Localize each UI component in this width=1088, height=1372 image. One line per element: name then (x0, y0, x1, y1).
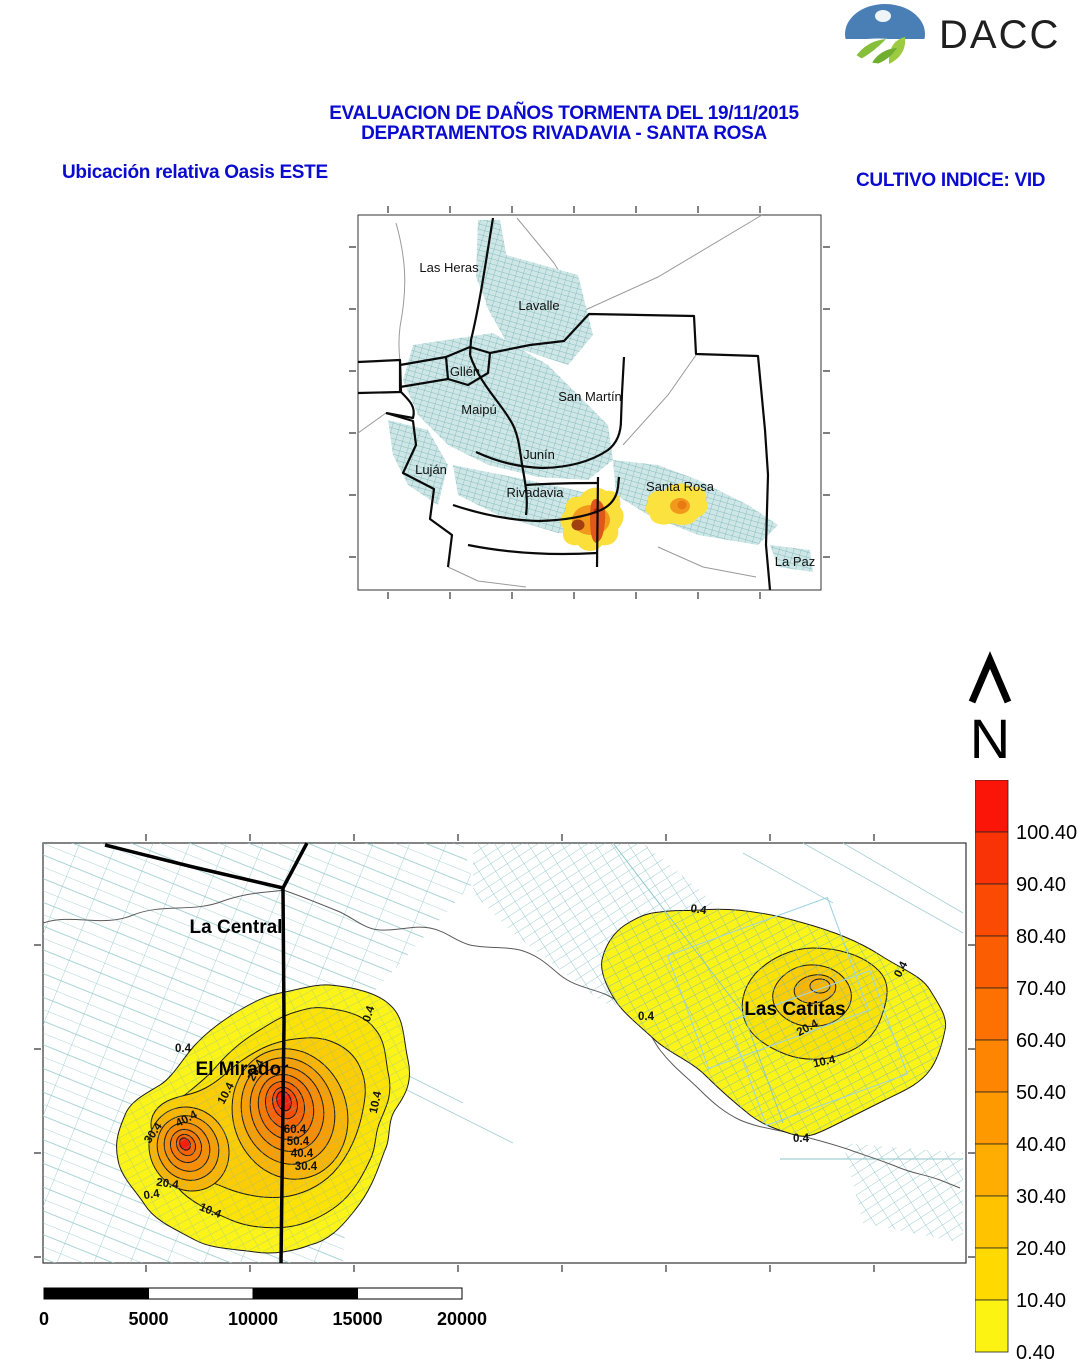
dept-label-rivadavia: Rivadavia (506, 485, 564, 500)
scale-label: 20000 (437, 1309, 487, 1329)
scale-label: 5000 (128, 1309, 168, 1329)
legend-color-scale: 100.40 90.40 80.40 70.40 60.40 50.40 40.… (975, 780, 1087, 1365)
dept-label-san-martin: San Martín (558, 389, 622, 404)
dept-label-maipu: Maipú (461, 402, 496, 417)
contour-label: 50.4 (287, 1136, 310, 1148)
dacc-logo: DACC (843, 3, 1060, 67)
dept-label-la-paz: La Paz (775, 554, 815, 569)
scale-label: 15000 (332, 1309, 382, 1329)
title-line-1: EVALUACION DE DAÑOS TORMENTA DEL 19/11/2… (234, 104, 894, 124)
damage-contour-map: 0.4 0.4 0.4 10.4 10.4 10.4 20.4 20.4 30.… (31, 831, 978, 1275)
legend-value-labels: 100.40 90.40 80.40 70.40 60.40 50.40 40.… (1016, 822, 1077, 1364)
title-line-2: DEPARTAMENTOS RIVADAVIA - SANTA ROSA (234, 124, 894, 144)
contour-label: 60.4 (284, 1124, 307, 1136)
legend-value: 20.40 (1016, 1238, 1066, 1260)
legend-color-blocks (975, 780, 1008, 1352)
legend-value: 40.40 (1016, 1134, 1066, 1156)
legend-value: 30.40 (1016, 1186, 1066, 1208)
place-label-las-catitas: Las Catitas (744, 999, 845, 1020)
north-arrow-label: N (970, 707, 1010, 765)
dept-label-junin: Junín (523, 447, 555, 462)
north-arrow: N (940, 640, 1050, 765)
scale-label: 0 (39, 1309, 49, 1329)
place-label-el-mirador: El Mirador (196, 1059, 290, 1080)
legend-value: 80.40 (1016, 926, 1066, 948)
scale-bar: 0 5000 10000 15000 20000 (36, 1280, 516, 1336)
contour-label: 0.4 (690, 903, 708, 917)
contour-label: 40.4 (291, 1148, 314, 1160)
overview-map: Las Heras Lavalle Gllén Maipú San Martín… (346, 203, 833, 602)
contour-label: 30.4 (295, 1161, 318, 1173)
legend-value: 50.40 (1016, 1082, 1066, 1104)
dept-label-lujan: Luján (415, 462, 447, 477)
dacc-logo-text: DACC (939, 13, 1060, 58)
legend-value: 60.40 (1016, 1030, 1066, 1052)
contour-label: 0.4 (175, 1043, 192, 1055)
legend-value: 0.40 (1016, 1342, 1055, 1364)
report-title: EVALUACION DE DAÑOS TORMENTA DEL 19/11/2… (234, 104, 894, 144)
subtitle-right: CULTIVO INDICE: VID (856, 170, 1045, 192)
legend-value: 10.40 (1016, 1290, 1066, 1312)
scale-label: 10000 (228, 1309, 278, 1329)
contour-label: 0.4 (793, 1133, 810, 1145)
dept-label-las-heras: Las Heras (419, 260, 479, 275)
dept-label-lavalle: Lavalle (518, 298, 559, 313)
legend-value: 100.40 (1016, 822, 1077, 844)
legend-value: 90.40 (1016, 874, 1066, 896)
dacc-logo-icon (843, 3, 931, 67)
contour-label: 0.4 (143, 1188, 161, 1202)
contour-label: 0.4 (638, 1011, 655, 1023)
legend-value: 70.40 (1016, 978, 1066, 1000)
place-label-la-central: La Central (190, 917, 283, 938)
dept-label-santa-rosa: Santa Rosa (646, 479, 715, 494)
report-page: DACC EVALUACION DE DAÑOS TORMENTA DEL 19… (0, 0, 1088, 1372)
subtitle-left: Ubicación relativa Oasis ESTE (62, 162, 328, 184)
scale-bar-labels: 0 5000 10000 15000 20000 (39, 1309, 487, 1329)
scale-bar-segments (44, 1288, 462, 1299)
north-arrow-chevron-icon (972, 660, 1008, 702)
dept-label-gllen: Gllén (450, 364, 480, 379)
